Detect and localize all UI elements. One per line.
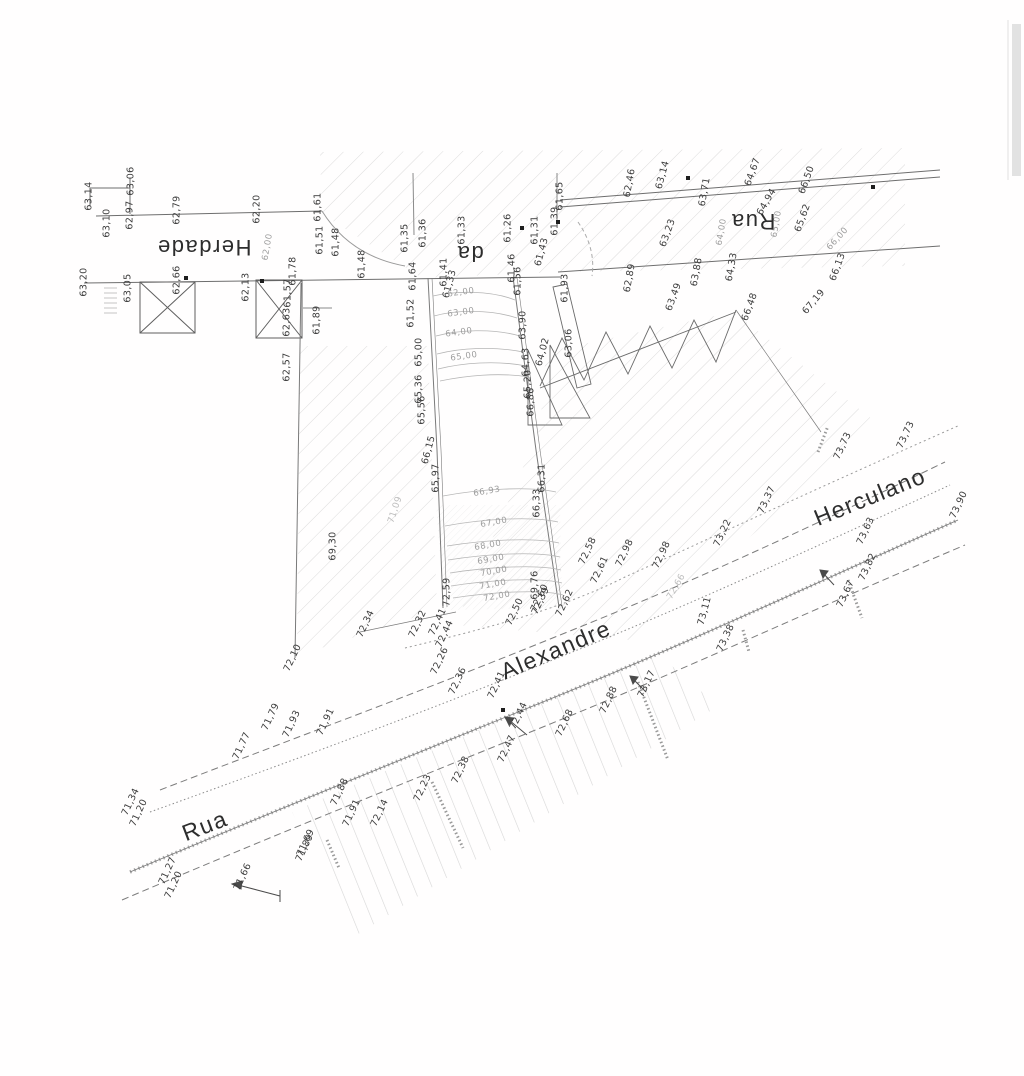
spot-elevation-label: 72,34 [356, 609, 377, 639]
survey-point-marker [556, 220, 560, 224]
spot-elevation-label: 66,33 [532, 488, 542, 517]
spot-elevation-label: 62,46 [623, 168, 637, 198]
contour-elevation-label: 64,00 [715, 218, 728, 246]
spot-elevation-label: 62,66 [172, 265, 182, 294]
spot-elevation-label: 61,52 [406, 298, 416, 327]
spot-elevation-label: 66,48 [741, 292, 760, 323]
contour-elevation-label: 64,00 [445, 327, 473, 339]
spot-elevation-label: 72,68 [555, 708, 576, 738]
contour-elevation-label: 63,00 [447, 307, 475, 319]
spot-elevation-label: 71,66 [233, 862, 254, 892]
spot-elevation-label: 71,91 [342, 798, 363, 828]
spot-elevation-label: 63,23 [659, 218, 678, 249]
spot-elevation-label: 63,49 [665, 282, 684, 313]
spot-elevation-label: 72,88 [599, 685, 620, 715]
contour-elevation-label: 67,00 [480, 516, 508, 529]
spot-elevation-label: 61,64 [408, 261, 418, 290]
spot-elevation-label: 71,93 [282, 709, 303, 739]
spot-elevation-label: 72,98 [652, 540, 673, 570]
spot-elevation-label: 65,56 [417, 395, 427, 424]
spot-elevation-label: 61,48 [357, 249, 367, 278]
survey-point-marker [686, 176, 690, 180]
scanned-plan-page: 63,1463,1063,0662,9762,7962,2061,6161,51… [0, 0, 1024, 1076]
spot-elevation-label: 72,47 [497, 734, 518, 764]
contour-elevation-label: 66,93 [473, 485, 501, 498]
street-name-label: da [456, 242, 483, 264]
spot-elevation-label: 62,89 [623, 263, 637, 293]
spot-elevation-label: 61,93 [560, 273, 570, 302]
spot-elevation-label: 62,20 [252, 194, 262, 223]
spot-elevation-label: 61,56 [513, 266, 523, 295]
survey-point-marker [260, 279, 264, 283]
spot-elevation-label: 62,63 [282, 307, 292, 336]
survey-point-marker [501, 708, 505, 712]
spot-elevation-label: 62,97 [125, 200, 135, 229]
spot-elevation-label: 66,86 [526, 387, 536, 416]
spot-elevation-label: 72,98 [615, 538, 636, 568]
spot-elevation-label: 63,06 [564, 328, 574, 357]
spot-elevation-label: 64,67 [744, 157, 763, 188]
contour-elevation-label: 62,00 [261, 233, 274, 261]
spot-elevation-label: 61,57 [283, 278, 293, 307]
spot-elevation-label: 63,10 [102, 208, 112, 237]
spot-elevation-label: 71,69 [296, 828, 317, 858]
spot-elevation-label: 72,50 [505, 597, 526, 627]
spot-elevation-label: 73,67 [836, 579, 857, 609]
spot-elevation-label: 73,37 [757, 485, 778, 515]
spot-elevation-label: 72,38 [451, 755, 472, 785]
survey-point-marker [184, 276, 188, 280]
spot-elevation-label: 63,20 [79, 267, 89, 296]
spot-elevation-label: 64,02 [535, 337, 552, 368]
spot-elevation-label: 71,79 [261, 702, 282, 732]
spot-elevation-label: 61,51 [315, 225, 325, 254]
street-name-label: Alexandre [498, 617, 615, 684]
spot-elevation-label: 72,32 [408, 609, 429, 639]
spot-elevation-label: 66,13 [829, 252, 848, 283]
spot-elevation-label: 61,35 [400, 223, 410, 252]
spot-elevation-label: 66,15 [421, 435, 438, 466]
spot-elevation-label: 72,59 [442, 577, 452, 606]
spot-elevation-label: 66,50 [798, 165, 817, 196]
elevation-labels-layer: 63,1463,1063,0662,9762,7962,2061,6161,51… [0, 0, 1024, 1076]
contour-elevation-label: 68,00 [474, 539, 502, 552]
spot-elevation-label: 72,36 [448, 666, 469, 696]
street-name-label: Herdade [157, 236, 252, 258]
spot-elevation-label: 72,26 [430, 646, 451, 676]
spot-elevation-label: 72,62 [555, 588, 576, 618]
spot-elevation-label: 61,36 [418, 218, 428, 247]
spot-elevation-label: 63,88 [690, 257, 704, 287]
spot-elevation-label: 61,26 [503, 213, 513, 242]
spot-elevation-label: 64,33 [725, 252, 739, 282]
spot-elevation-label: 61,89 [312, 305, 322, 334]
survey-point-marker [520, 226, 524, 230]
spot-elevation-label: 63,05 [123, 273, 133, 302]
spot-elevation-label: 72,58 [578, 536, 599, 566]
street-name-label: Rua [731, 210, 776, 232]
spot-elevation-label: 65,97 [431, 463, 441, 492]
spot-elevation-label: 65,00 [414, 337, 424, 366]
spot-elevation-label: 73,90 [949, 490, 970, 520]
street-name-label: Rua [179, 807, 231, 845]
spot-elevation-label: 73,73 [896, 420, 917, 450]
spot-elevation-label: 72,14 [370, 798, 391, 828]
faint-elevation-label: 71,09 [387, 495, 404, 524]
faint-elevation-label: 72,66 [666, 573, 688, 602]
spot-elevation-label: 61,48 [331, 227, 341, 256]
spot-elevation-label: 73,11 [697, 596, 714, 627]
spot-elevation-label: 72,10 [283, 643, 304, 673]
spot-elevation-label: 63,06 [126, 166, 136, 195]
spot-elevation-label: 61,61 [313, 192, 323, 221]
spot-elevation-label: 73,63 [856, 516, 877, 546]
contour-elevation-label: 66,00 [826, 226, 851, 252]
spot-elevation-label: 69,30 [328, 531, 338, 560]
spot-elevation-label: 72,23 [413, 773, 434, 803]
spot-elevation-label: 63,14 [655, 160, 672, 191]
spot-elevation-label: 63,14 [84, 181, 94, 210]
contour-elevation-label: 65,00 [450, 351, 478, 363]
survey-point-marker [871, 185, 875, 189]
contour-elevation-label: 72,00 [483, 590, 511, 603]
spot-elevation-label: 67,19 [801, 288, 827, 316]
spot-elevation-label: 63,71 [698, 177, 712, 207]
spot-elevation-label: 65,62 [794, 203, 813, 234]
spot-elevation-label: 73,17 [637, 669, 658, 699]
spot-elevation-label: 62,13 [241, 272, 251, 301]
spot-elevation-label: 72,44 [509, 701, 530, 731]
spot-elevation-label: 73,73 [833, 431, 854, 461]
spot-elevation-label: 71,77 [232, 731, 253, 761]
spot-elevation-label: 73,82 [858, 552, 879, 582]
spot-elevation-label: 73,22 [713, 518, 734, 548]
contour-elevation-label: 62,00 [447, 287, 475, 299]
spot-elevation-label: 72,61 [590, 555, 611, 585]
spot-elevation-label: 71,88 [330, 777, 351, 807]
spot-elevation-label: 62,79 [172, 195, 182, 224]
spot-elevation-label: 63,90 [518, 310, 528, 339]
spot-elevation-label: 73,38 [716, 623, 737, 653]
spot-elevation-label: 62,57 [282, 352, 292, 381]
spot-elevation-label: 71,91 [316, 707, 337, 737]
